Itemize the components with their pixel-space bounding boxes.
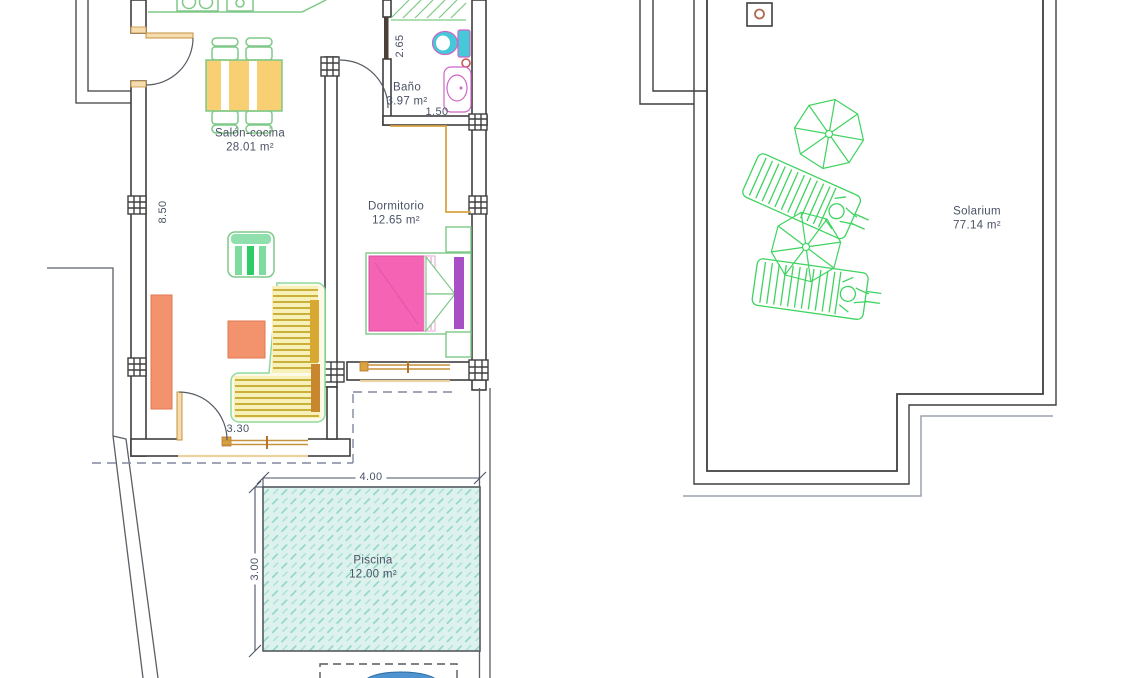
room-label-solarium: Solarium 77.14 m² xyxy=(953,206,1001,233)
bed xyxy=(366,253,471,334)
room-name: Piscina xyxy=(349,555,397,569)
dining-table xyxy=(206,60,282,111)
room-area: 12.65 m² xyxy=(368,214,424,228)
terrace-right-boundary xyxy=(480,388,491,678)
entrance-door xyxy=(131,27,193,87)
kitchen-counter xyxy=(148,0,326,12)
room-label-salon: Salón-cocina 28.01 m² xyxy=(215,128,285,155)
column xyxy=(128,358,146,376)
bedroom-door xyxy=(340,60,388,108)
sideboard xyxy=(151,295,172,409)
dimension-salon-wall: 8.50 xyxy=(157,200,169,223)
floor-plan: Salón-cocina 28.01 m² Baño 3.97 m² Dormi… xyxy=(0,0,1125,678)
room-area: 3.97 m² xyxy=(386,95,427,109)
room-area: 77.14 m² xyxy=(953,219,1001,233)
room-name: Dormitorio xyxy=(368,201,424,215)
roof-vent xyxy=(747,3,772,26)
shower-hatch xyxy=(391,0,466,20)
armchair xyxy=(228,232,274,277)
room-label-bedroom: Dormitorio 12.65 m² xyxy=(368,201,424,228)
dimension-salon-opening: 3.30 xyxy=(226,423,249,435)
dimension-bathroom-depth: 2.65 xyxy=(394,34,406,57)
column xyxy=(469,114,487,130)
wardrobe-line xyxy=(390,126,471,212)
nightstand xyxy=(446,227,471,252)
room-area: 12.00 m² xyxy=(349,568,397,582)
coffee-table xyxy=(228,321,265,358)
dimension-pool-width: 4.00 xyxy=(355,471,386,483)
bathroom-door xyxy=(384,17,389,59)
room-area: 28.01 m² xyxy=(215,141,285,155)
column xyxy=(324,362,344,382)
room-name: Solarium xyxy=(953,206,1001,220)
column xyxy=(128,196,146,214)
toilet xyxy=(433,30,471,67)
dimension-pool-depth: 3.00 xyxy=(249,553,261,584)
room-name: Baño xyxy=(386,82,427,96)
room-name: Salón-cocina xyxy=(215,128,285,142)
room-label-pool: Piscina 12.00 m² xyxy=(349,555,397,582)
solarium-walls xyxy=(640,0,1056,484)
sun-lounger-2 xyxy=(751,258,883,322)
salon-terrace-door xyxy=(177,392,227,440)
plan-linework xyxy=(0,0,1125,678)
dimension-bathroom-width: 1.50 xyxy=(425,106,448,118)
column xyxy=(469,196,487,214)
water-feature xyxy=(365,672,437,678)
parasol-1 xyxy=(788,93,869,174)
room-label-bathroom: Baño 3.97 m² xyxy=(386,82,427,109)
nightstand xyxy=(446,332,471,357)
column xyxy=(469,360,488,380)
dining-set xyxy=(206,38,282,133)
sun-lounger-1 xyxy=(741,152,876,247)
column xyxy=(321,57,339,76)
